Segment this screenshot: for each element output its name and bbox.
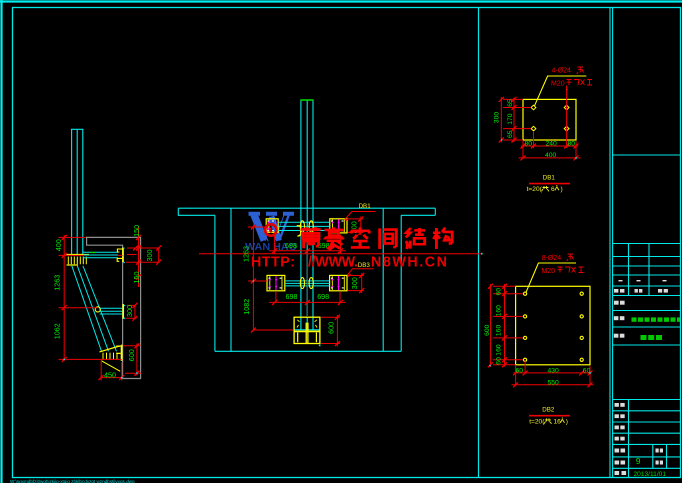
- svg-text:170: 170: [507, 113, 514, 125]
- svg-text:400: 400: [54, 239, 63, 251]
- svg-text:t=20(: t=20(: [529, 419, 545, 426]
- svg-text:DB2: DB2: [542, 407, 555, 414]
- svg-text:160: 160: [496, 305, 503, 317]
- svg-text:160: 160: [496, 325, 503, 337]
- svg-text:4-Ø24: 4-Ø24: [552, 68, 572, 75]
- svg-text:550: 550: [548, 379, 560, 386]
- svg-text:698: 698: [285, 241, 297, 250]
- svg-text:9: 9: [636, 456, 641, 466]
- svg-text:60: 60: [496, 357, 503, 365]
- svg-text:150: 150: [132, 225, 141, 237]
- svg-text:HTTP:: HTTP:: [251, 255, 295, 271]
- svg-text:1263: 1263: [53, 275, 62, 291]
- svg-text:1082: 1082: [242, 299, 251, 315]
- svg-text:150: 150: [132, 272, 141, 284]
- svg-text:600: 600: [326, 322, 335, 334]
- svg-text:430: 430: [548, 368, 560, 375]
- svg-text:65: 65: [507, 99, 514, 107]
- svg-text:6: 6: [551, 186, 555, 193]
- svg-text:1263: 1263: [241, 246, 250, 262]
- svg-text:8-Ø24: 8-Ø24: [542, 255, 562, 262]
- svg-text:240: 240: [546, 140, 558, 147]
- svg-text:): ): [561, 186, 563, 193]
- svg-text:80: 80: [525, 140, 533, 147]
- svg-text:DB1: DB1: [359, 203, 372, 210]
- svg-text:60: 60: [516, 368, 524, 375]
- svg-text:300: 300: [350, 277, 359, 289]
- svg-text:2013/11/01: 2013/11/01: [634, 471, 667, 478]
- svg-text:16: 16: [554, 419, 562, 426]
- svg-text:t=20(: t=20(: [527, 186, 543, 193]
- svg-text:698: 698: [286, 292, 298, 301]
- svg-text:DB3: DB3: [358, 262, 371, 269]
- svg-text:60: 60: [496, 288, 503, 296]
- svg-text:160: 160: [496, 344, 503, 356]
- svg-text:W:\sgxmdbfzjt\wqhjzkjjg-xtgjg: W:\sgxmdbfzjt\wqhjzkjjg-xtgjg zbklbcdxzg…: [10, 479, 135, 483]
- svg-text:M20: M20: [542, 268, 556, 275]
- svg-text:698: 698: [317, 292, 329, 301]
- svg-text:80: 80: [568, 140, 576, 147]
- svg-text:300: 300: [125, 305, 134, 317]
- svg-text:300: 300: [145, 250, 154, 262]
- svg-text:400: 400: [545, 152, 557, 159]
- svg-text:DB1: DB1: [543, 174, 556, 181]
- svg-text:450: 450: [104, 370, 116, 379]
- svg-text:600: 600: [127, 349, 136, 361]
- svg-text://WWW.: //WWW.: [308, 255, 358, 271]
- svg-text:300: 300: [494, 112, 501, 124]
- svg-text:65: 65: [507, 130, 514, 138]
- svg-text:): ): [566, 419, 568, 426]
- svg-text:600: 600: [484, 324, 491, 336]
- svg-text:M20: M20: [551, 80, 565, 87]
- svg-text:1062: 1062: [53, 323, 62, 339]
